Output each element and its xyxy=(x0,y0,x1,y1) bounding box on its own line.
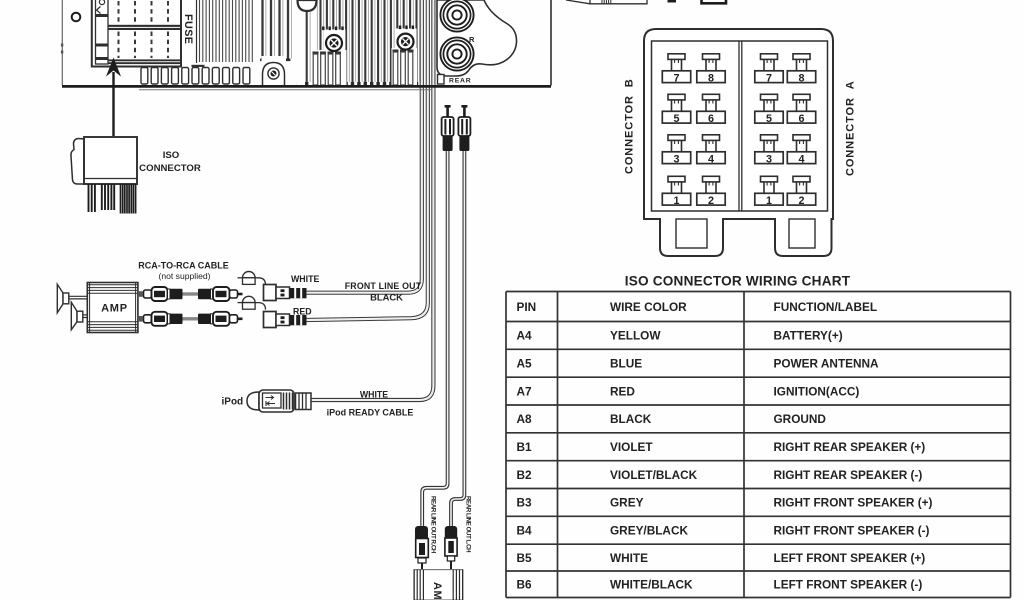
svg-text:RIGHT REAR SPEAKER (-): RIGHT REAR SPEAKER (-) xyxy=(774,468,923,482)
svg-text:BATTERY(+): BATTERY(+) xyxy=(774,329,843,343)
svg-text:CONNECTOR A: CONNECTOR A xyxy=(845,80,857,176)
svg-text:WHITE/BLACK: WHITE/BLACK xyxy=(610,578,693,592)
svg-text:6: 6 xyxy=(798,113,804,125)
svg-text:B4: B4 xyxy=(517,524,533,538)
svg-text:GROUND: GROUND xyxy=(774,412,827,426)
svg-text:VIOLET: VIOLET xyxy=(610,440,653,454)
svg-text:A5: A5 xyxy=(517,357,533,371)
svg-text:A7: A7 xyxy=(517,384,533,398)
svg-text:4: 4 xyxy=(798,153,804,165)
svg-text:8: 8 xyxy=(708,72,714,84)
svg-text:LEFT FRONT SPEAKER (-): LEFT FRONT SPEAKER (-) xyxy=(774,578,923,592)
svg-text:1: 1 xyxy=(673,195,679,207)
svg-text:BLACK: BLACK xyxy=(610,412,652,426)
svg-text:5: 5 xyxy=(673,113,679,125)
svg-text:FRONT LINE OUT: FRONT LINE OUT xyxy=(345,281,422,291)
svg-text:WHITE: WHITE xyxy=(360,390,388,400)
svg-text:iPod: iPod xyxy=(222,397,244,408)
svg-text:3: 3 xyxy=(673,153,679,165)
svg-text:3: 3 xyxy=(766,153,772,165)
svg-text:RIGHT FRONT SPEAKER (+): RIGHT FRONT SPEAKER (+) xyxy=(774,496,933,510)
svg-text:YELLOW: YELLOW xyxy=(610,329,661,343)
svg-text:WIRE COLOR: WIRE COLOR xyxy=(610,300,687,314)
svg-text:REAR LINE OUT L.CH: REAR LINE OUT L.CH xyxy=(465,496,472,553)
svg-text:VIOLET/BLACK: VIOLET/BLACK xyxy=(610,468,698,482)
svg-text:WHITE: WHITE xyxy=(610,551,648,565)
svg-text:GREY/BLACK: GREY/BLACK xyxy=(610,524,688,538)
svg-text:BLACK: BLACK xyxy=(370,292,403,303)
svg-text:2: 2 xyxy=(798,195,804,207)
svg-text:PIN: PIN xyxy=(517,300,537,314)
svg-text:B6: B6 xyxy=(517,578,533,592)
svg-text:BLUE: BLUE xyxy=(610,357,642,371)
svg-text:RIGHT REAR SPEAKER (+): RIGHT REAR SPEAKER (+) xyxy=(774,440,926,454)
svg-text:IGNITION(ACC): IGNITION(ACC) xyxy=(774,384,860,398)
svg-text:FUNCTION/LABEL: FUNCTION/LABEL xyxy=(774,300,878,314)
svg-text:A4: A4 xyxy=(517,329,533,343)
svg-text:B1: B1 xyxy=(517,440,533,454)
svg-text:LEFT FRONT SPEAKER (+): LEFT FRONT SPEAKER (+) xyxy=(774,551,926,565)
svg-text:1: 1 xyxy=(766,195,772,207)
svg-text:2: 2 xyxy=(708,195,714,207)
svg-text:GREY: GREY xyxy=(610,496,644,510)
svg-text:B3: B3 xyxy=(517,496,533,510)
svg-text:RIGHT FRONT SPEAKER (-): RIGHT FRONT SPEAKER (-) xyxy=(774,524,930,538)
svg-text:B5: B5 xyxy=(517,551,533,565)
svg-text:AMP: AMP xyxy=(101,303,128,315)
svg-text:REAR LINE OUT R.CH: REAR LINE OUT R.CH xyxy=(430,496,437,554)
svg-text:A8: A8 xyxy=(517,412,533,426)
svg-text:ISO CONNECTOR WIRING CHART: ISO CONNECTOR WIRING CHART xyxy=(625,274,851,289)
svg-text:8: 8 xyxy=(798,72,804,84)
svg-text:CONNECTOR: CONNECTOR xyxy=(139,163,201,174)
svg-text:B2: B2 xyxy=(517,468,533,482)
svg-text:WHITE: WHITE xyxy=(291,274,319,284)
svg-text:RED: RED xyxy=(610,384,635,398)
svg-text:7: 7 xyxy=(673,72,679,84)
svg-text:(not supplied): (not supplied) xyxy=(158,271,210,281)
svg-text:RED: RED xyxy=(293,307,312,317)
svg-text:iPod READY CABLE: iPod READY CABLE xyxy=(327,408,414,418)
svg-text:7: 7 xyxy=(766,72,772,84)
svg-text:POWER ANTENNA: POWER ANTENNA xyxy=(774,357,880,371)
svg-text:AMP: AMP xyxy=(431,582,443,600)
svg-text:REAR: REAR xyxy=(449,78,471,85)
svg-text:CONNECTOR B: CONNECTOR B xyxy=(624,78,636,174)
svg-text:ISO: ISO xyxy=(163,150,180,161)
svg-text:FUSE: FUSE xyxy=(182,14,194,44)
svg-text:RCA-TO-RCA CABLE: RCA-TO-RCA CABLE xyxy=(138,261,229,271)
svg-text:6: 6 xyxy=(708,113,714,125)
svg-text:4: 4 xyxy=(708,153,714,165)
svg-text:5: 5 xyxy=(766,113,772,125)
